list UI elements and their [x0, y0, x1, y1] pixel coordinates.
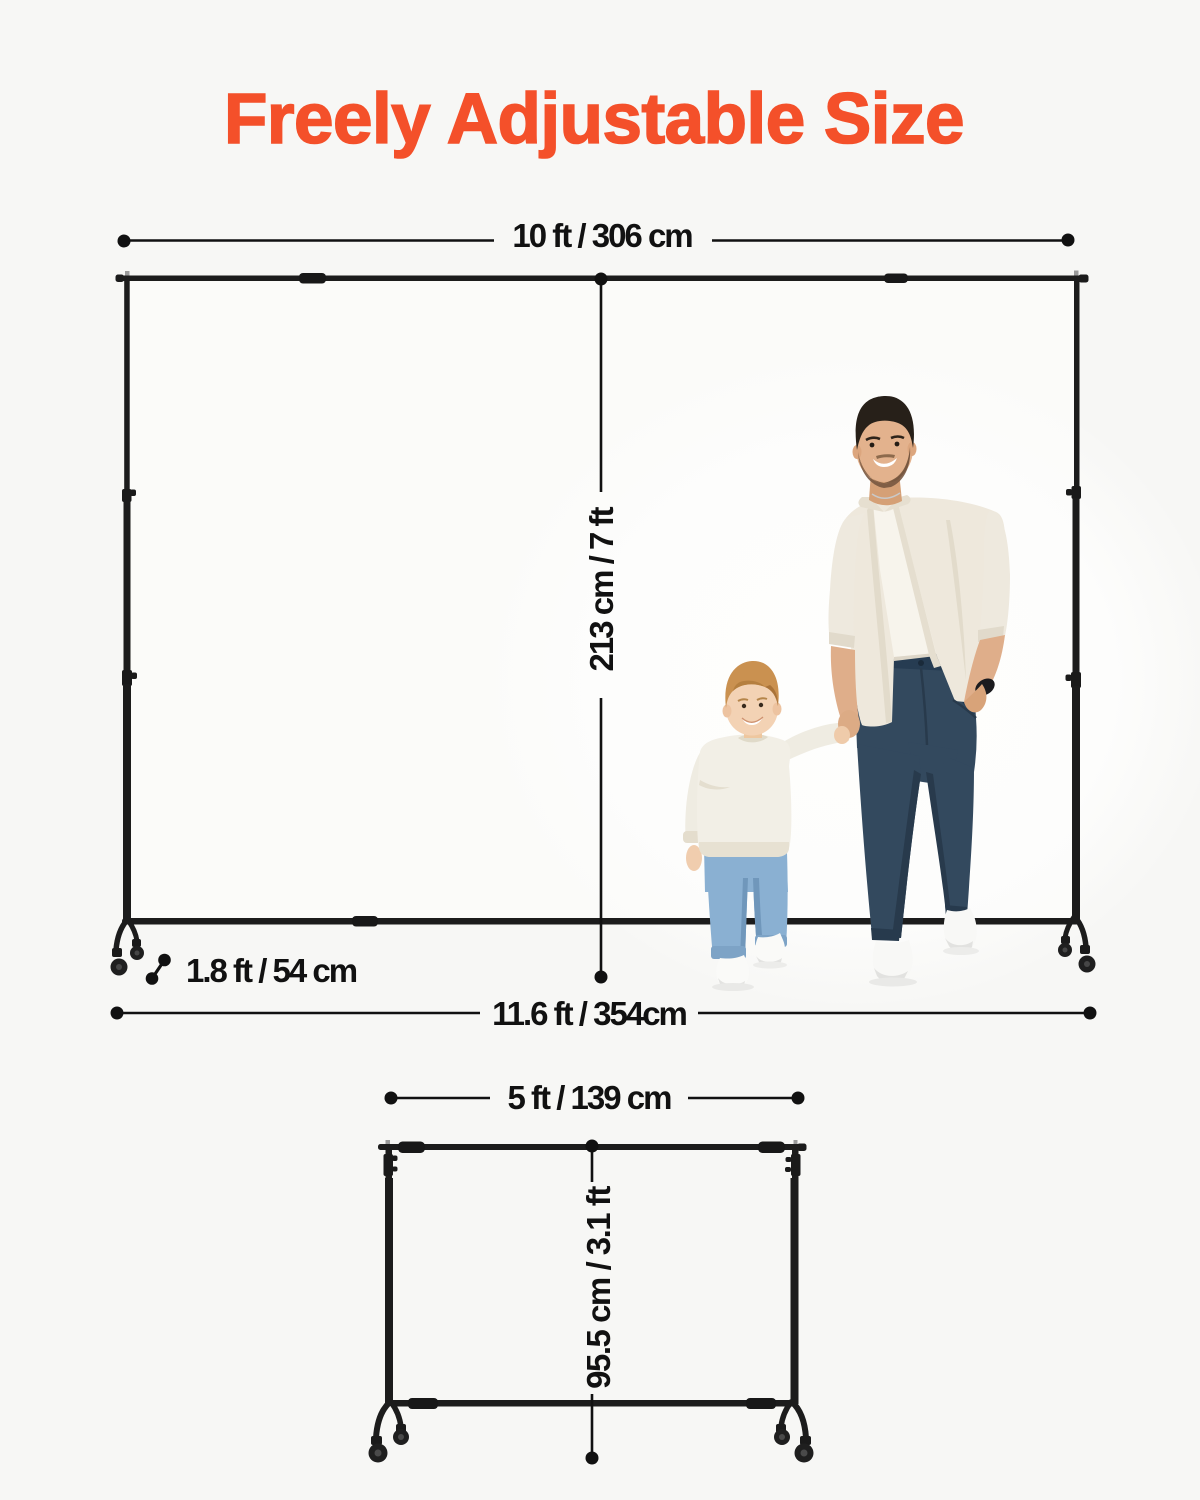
svg-text:11.6 ft / 354cm: 11.6 ft / 354cm	[492, 995, 686, 1032]
svg-text:213 cm / 7 ft: 213 cm / 7 ft	[583, 507, 620, 672]
svg-text:Freely Adjustable Size: Freely Adjustable Size	[224, 80, 964, 159]
svg-text:10 ft / 306 cm: 10 ft / 306 cm	[512, 217, 692, 254]
svg-text:5 ft / 139 cm: 5 ft / 139 cm	[508, 1079, 672, 1116]
svg-text:95.5 cm / 3.1 ft: 95.5 cm / 3.1 ft	[580, 1186, 617, 1389]
svg-text:1.8 ft / 54 cm: 1.8 ft / 54 cm	[186, 952, 357, 989]
